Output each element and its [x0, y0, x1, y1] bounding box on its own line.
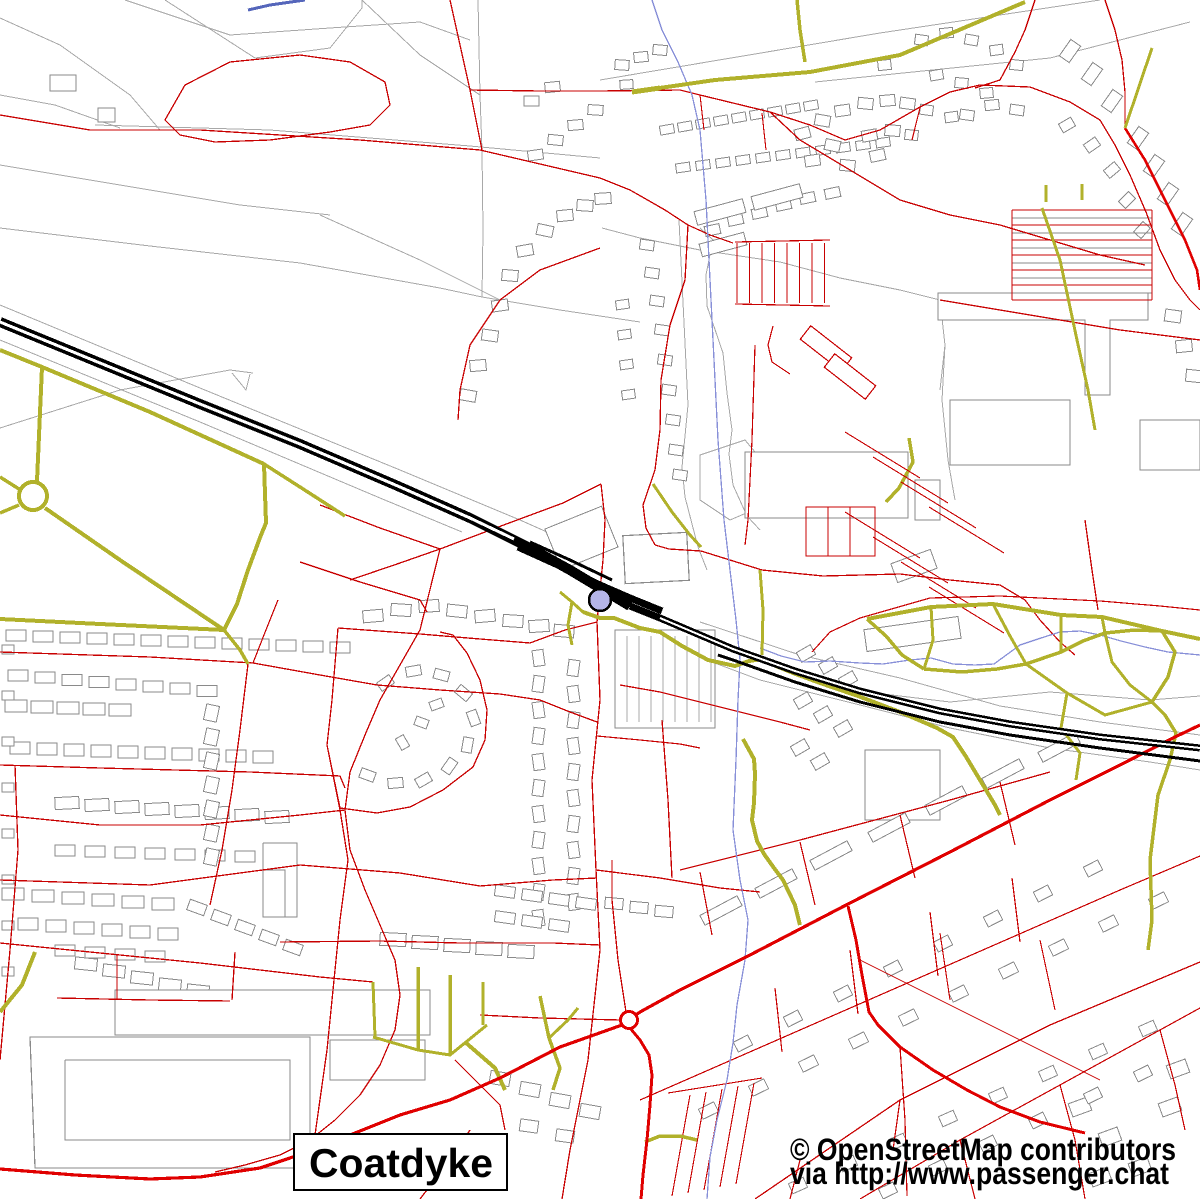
svg-text:via http://www.passenger.chat: via http://www.passenger.chat — [790, 1156, 1169, 1191]
svg-text:Coatdyke: Coatdyke — [309, 1140, 493, 1186]
